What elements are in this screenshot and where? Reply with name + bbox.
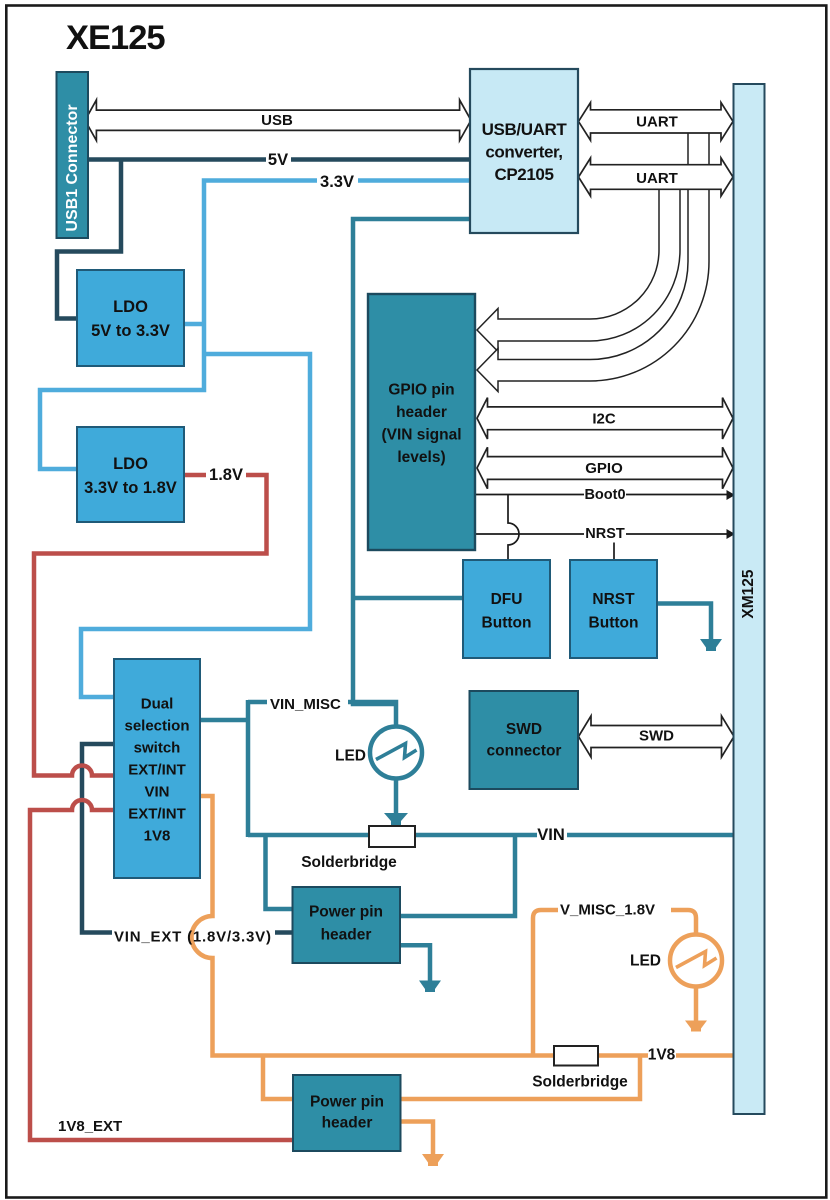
svg-text:levels): levels) [397, 449, 445, 466]
svg-text:NRST: NRST [585, 526, 625, 542]
svg-text:LED: LED [335, 748, 366, 765]
svg-text:V_MISC_1.8V: V_MISC_1.8V [560, 902, 655, 919]
svg-text:Boot0: Boot0 [584, 487, 625, 503]
svg-text:NRST: NRST [592, 591, 635, 608]
svg-text:Solderbridge: Solderbridge [532, 1074, 628, 1091]
svg-text:VIN_MISC: VIN_MISC [270, 696, 341, 713]
svg-text:Solderbridge: Solderbridge [301, 854, 397, 871]
svg-text:UART: UART [636, 114, 678, 131]
svg-text:I2C: I2C [592, 411, 616, 428]
svg-text:XE125: XE125 [66, 19, 165, 57]
svg-text:USB1 Connector: USB1 Connector [64, 104, 81, 231]
svg-text:Button: Button [482, 615, 532, 632]
svg-text:3.3V: 3.3V [320, 173, 354, 191]
svg-text:selection: selection [124, 718, 189, 735]
svg-text:VIN_EXT (1.8V/3.3V): VIN_EXT (1.8V/3.3V) [114, 929, 272, 946]
svg-text:DFU: DFU [491, 591, 523, 608]
svg-text:LDO: LDO [113, 455, 148, 473]
svg-text:1V8_EXT: 1V8_EXT [58, 1118, 122, 1135]
svg-text:SWD: SWD [506, 721, 542, 738]
svg-text:switch: switch [134, 740, 181, 757]
svg-text:USB: USB [261, 112, 293, 129]
svg-text:VIN: VIN [144, 784, 169, 801]
svg-text:converter,: converter, [485, 143, 562, 162]
svg-text:LED: LED [630, 953, 661, 970]
svg-text:EXT/INT: EXT/INT [128, 806, 186, 823]
svg-text:Dual: Dual [141, 696, 174, 713]
svg-text:(VIN signal: (VIN signal [381, 427, 461, 444]
svg-text:GPIO pin: GPIO pin [388, 382, 454, 399]
svg-text:Power pin: Power pin [310, 1094, 384, 1111]
svg-text:GPIO: GPIO [585, 460, 623, 477]
svg-text:VIN: VIN [537, 826, 565, 844]
svg-text:1V8: 1V8 [144, 828, 171, 845]
svg-text:Power pin: Power pin [309, 904, 383, 921]
svg-text:LDO: LDO [113, 298, 148, 316]
svg-text:SWD: SWD [639, 728, 674, 745]
svg-text:1.8V: 1.8V [209, 466, 243, 484]
svg-text:header: header [396, 404, 447, 421]
svg-text:1V8: 1V8 [648, 1047, 676, 1064]
svg-text:5V to 3.3V: 5V to 3.3V [91, 322, 170, 340]
svg-text:XM125: XM125 [740, 569, 757, 618]
svg-text:USB/UART: USB/UART [482, 120, 568, 139]
svg-text:connector: connector [487, 743, 562, 760]
svg-text:3.3V to 1.8V: 3.3V to 1.8V [84, 479, 177, 497]
svg-text:CP2105: CP2105 [494, 165, 553, 184]
svg-text:header: header [322, 1115, 373, 1132]
svg-text:5V: 5V [268, 151, 288, 169]
svg-text:EXT/INT: EXT/INT [128, 762, 186, 779]
svg-text:UART: UART [636, 170, 678, 187]
svg-text:Button: Button [589, 615, 639, 632]
svg-text:header: header [321, 927, 372, 944]
